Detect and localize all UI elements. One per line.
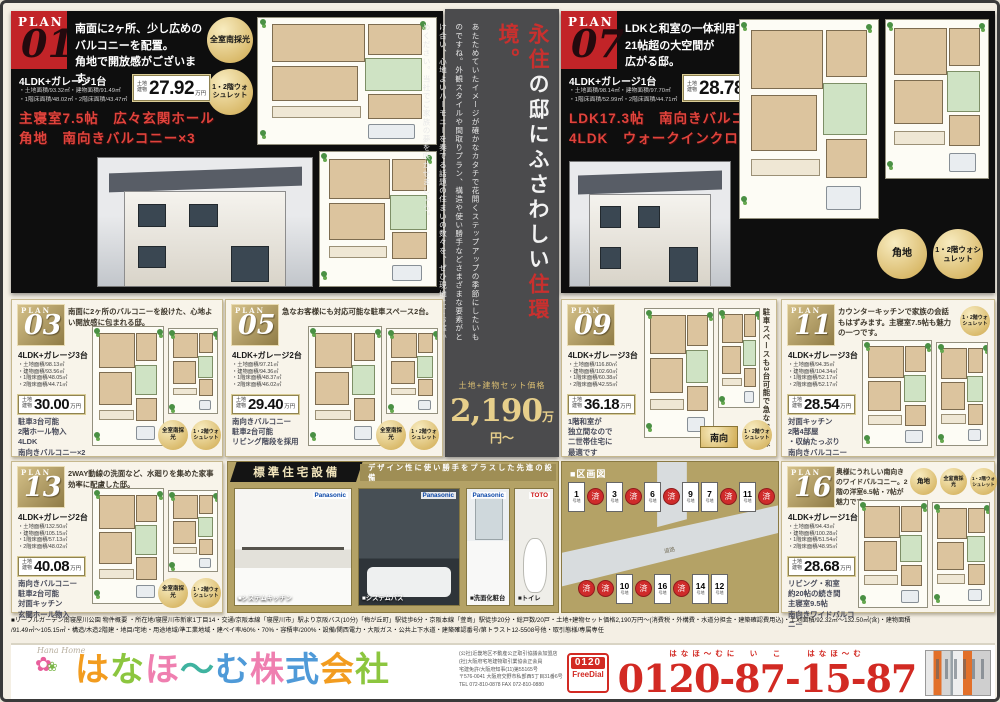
plan-spec: 4LDK+ガレージ2台 <box>232 350 304 361</box>
lot-number: 14号地 <box>692 574 709 604</box>
floorplan-room <box>99 372 133 405</box>
price-prefix-line: 建物 <box>792 404 802 410</box>
floorplan-room <box>949 28 980 66</box>
plan-number: 16 <box>787 477 835 500</box>
price-prefix-line: 建物 <box>572 404 582 410</box>
address-line: TEL 072-810-0878 FAX 072-810-0880 <box>459 682 563 690</box>
plan-word: PLAN <box>17 466 65 477</box>
area-line: ・1階床面積/52.99㎡・2階床面積/44.71㎡ <box>569 96 681 105</box>
price-prefix: 土地建物 <box>792 560 802 572</box>
floorplan-room <box>198 517 213 538</box>
phone-block: はなほ〜むに い こ はなほ〜む 0120-87-15-87 <box>613 645 921 699</box>
company-name-char: 会 <box>320 651 355 689</box>
tree-icon <box>260 19 266 25</box>
plan-spec: 4LDK+ガレージ3台 <box>18 350 90 361</box>
floorplan-room <box>354 398 376 422</box>
plan-number: 11 <box>787 315 835 338</box>
car-icon <box>968 589 983 601</box>
lot-sold-badge: 済 <box>720 488 737 505</box>
tree-icon <box>94 490 100 496</box>
plan-word: PLAN <box>231 304 279 315</box>
plan-spec: 4LDK+ガレージ2台 <box>18 512 90 523</box>
tree-icon <box>860 595 866 601</box>
car-icon <box>354 426 373 440</box>
tree-icon <box>94 432 100 438</box>
floorplan-room <box>864 541 897 571</box>
floorplan-room <box>368 94 421 119</box>
price-value: 28.54 <box>804 397 839 412</box>
floorplan-room <box>198 356 213 378</box>
badge-washlet: 1・2階ウォシュレット <box>191 578 221 608</box>
floorplan-room <box>391 361 415 385</box>
tree-icon <box>157 491 163 497</box>
plan-number: 01 <box>11 29 67 59</box>
plan-number: 09 <box>567 315 615 338</box>
floor-plan-1f <box>257 17 437 145</box>
siteplan-row-bottom: 済済10号地済16号地済14号地12号地 <box>578 574 728 604</box>
siteplan-label: ■区画図 <box>570 467 606 480</box>
feature-line: 駐車2台可能 <box>232 427 304 437</box>
floorplan-room <box>99 569 134 579</box>
feature-line: 1階和室が <box>568 417 640 427</box>
floorplan-room <box>272 66 357 101</box>
plan-features: 南向きバルコニー 駐車2台可能 リビング階段を採用 <box>232 417 304 448</box>
feature-line: 約20帖の続き間 <box>788 589 860 599</box>
plan-features: 対面キッチン 2階4部屋 ・収納たっぷり 南向きバルコニー <box>788 417 860 458</box>
plan-areas: ・土地面積/98.14㎡・建物面積/97.70㎡ ・1階床面積/52.99㎡・2… <box>569 87 681 104</box>
plan13-details: 4LDK+ガレージ2台 ・土地面積/132.50㎡ ・建物面積/105.15㎡ … <box>18 512 90 620</box>
floorplan-room <box>722 378 742 387</box>
lot-number: 11号地 <box>739 482 756 512</box>
tree-icon <box>433 331 439 337</box>
price-unit: 万円 <box>70 564 81 574</box>
price-box: 土地建物 30.00 万円 <box>18 395 85 414</box>
brand-label: Panasonic <box>313 492 349 499</box>
plan-word: PLAN <box>567 304 615 315</box>
floor-plan-1f <box>739 19 879 219</box>
tree-icon <box>938 344 944 350</box>
tree-icon <box>887 161 893 167</box>
floorplan-room <box>894 80 943 124</box>
equipment-title: 標準住宅設備 <box>253 464 340 480</box>
badge-south-light: 全室南採光 <box>207 17 253 63</box>
car-icon <box>418 400 431 410</box>
price-box: 土地建物 40.08 万円 <box>18 557 85 576</box>
property-outline: ■リーブルガーデン南寝屋川公園 物件概要 ・所在地/寝屋川市新家1丁目14・交通… <box>11 616 995 641</box>
floorplan-room <box>173 361 196 385</box>
floorplan-room <box>687 315 707 346</box>
plan-spec: 4LDK+ガレージ1台 <box>569 73 656 88</box>
area-line: ・1階床面積/48.37㎡ <box>232 375 304 382</box>
badge-corner-lot: 角地 <box>910 468 937 495</box>
lot-number: 7号地 <box>701 482 718 512</box>
tree-icon <box>213 493 218 499</box>
floorplan-room <box>868 381 901 411</box>
area-line: ・土地面積/116.80㎡ <box>568 362 640 369</box>
tree-icon <box>866 24 872 30</box>
freedial-number-label: 0120 <box>571 657 605 669</box>
photo-caption: ■トイレ <box>518 593 541 602</box>
plan16-card: PLAN 16 奥様にうれしい南向きのワイドバルコニー。2階の洋室6.5帖・7帖… <box>781 461 995 613</box>
price-box: 土地建物 27.92 万円 <box>133 75 210 101</box>
legal-line: (社)大阪府宅地建物取引業協会正会員 <box>459 659 563 667</box>
plan01-number-box: PLAN 01 <box>11 11 67 69</box>
area-line: ・2階床面積/42.55㎡ <box>568 382 640 389</box>
price-unit: 万円 <box>840 564 851 574</box>
plan05-details: 4LDK+ガレージ2台 ・土地面積/97.21㎡ ・建物面積/94.36㎡ ・1… <box>232 350 304 448</box>
photo-system-kitchen: Panasonic ■システムキッチン <box>234 488 352 606</box>
floor-plan-2f <box>168 328 218 414</box>
tree-icon <box>310 328 316 334</box>
badge-washlet: 1・2階ウォシュレット <box>960 306 990 336</box>
floorplan-room <box>136 495 157 522</box>
tree-icon <box>864 342 870 348</box>
area-line: ・1階床面積/52.17㎡ <box>788 375 860 382</box>
plan-areas: ・土地面積/97.21㎡ ・建物面積/94.36㎡ ・1階床面積/48.37㎡ … <box>232 362 304 388</box>
company-name-char: 社 <box>355 651 390 689</box>
plan11-details: 4LDK+ガレージ3台 ・土地面積/94.35㎡ ・建物面積/104.34㎡ ・… <box>788 350 860 458</box>
plan-features: 南向きバルコニー 駐車2台可能 対面キッチン 玄関ホール物入 <box>18 579 90 620</box>
company-name-char: 式 <box>285 651 320 689</box>
floor-plan-2f <box>168 490 218 572</box>
plan11-number-box: PLAN 11 <box>787 304 835 346</box>
tree-icon <box>321 153 327 159</box>
floorplan-room <box>937 508 966 539</box>
facade <box>124 191 287 287</box>
floorplan-room <box>941 348 967 379</box>
plan-areas: ・土地面積/116.80㎡ ・建物面積/102.60㎡ ・1階床面積/60.38… <box>568 362 640 388</box>
price-prefix: 土地建物 <box>236 398 246 410</box>
feature-line: 2階4部屋 <box>788 427 860 437</box>
floorplan-room <box>199 495 213 514</box>
plan-areas: ・土地面積/94.43㎡ ・建物面積/100.28㎡ ・1階床面積/51.54㎡… <box>788 524 860 550</box>
floorplan-room <box>315 333 352 368</box>
price-value: 40.08 <box>34 559 69 574</box>
floorplan-room <box>650 358 683 394</box>
floorplan-room <box>968 564 985 584</box>
plan-spec: 4LDK+ガレージ3台 <box>788 350 860 361</box>
office-photo <box>925 650 991 696</box>
floorplan-room <box>99 410 134 421</box>
lot-number: 6号地 <box>644 482 661 512</box>
floorplan-room <box>352 365 375 396</box>
floorplan-room <box>901 506 921 531</box>
plan16-number-box: PLAN 16 <box>787 466 835 508</box>
price-prefix-line: 建物 <box>22 566 32 572</box>
tree-icon <box>864 435 870 441</box>
company-name-char: は <box>75 651 110 689</box>
plan-word: PLAN <box>787 304 835 315</box>
plan03-card: PLAN 03 南面に2ヶ所のバルコニーを設けた、心地よい開放感に包まれる邸。 … <box>11 299 223 457</box>
tree-icon <box>921 503 927 509</box>
floorplan-room <box>272 24 365 62</box>
floorplan-room <box>967 376 983 403</box>
floorplan-room <box>937 542 964 571</box>
feature-line: 南向きバルコニー <box>788 448 860 458</box>
roof <box>578 171 722 195</box>
price-prefix-line: 建物 <box>22 404 32 410</box>
plan-spec: 4LDK+ガレージ1台 <box>19 73 106 88</box>
window <box>138 246 167 269</box>
price-prefix: 土地建物 <box>137 82 147 94</box>
lot-number: 3号地 <box>606 482 623 512</box>
price-unit: 万円 <box>284 402 295 412</box>
plan-features: 1階和室が 独立間なので 二世帯住宅に 最適です <box>568 417 640 458</box>
plan-spec: 4LDK+ガレージ3台 <box>568 350 640 361</box>
tree-icon <box>741 22 747 28</box>
set-price-block: 土地+建物セット価格 2,190万円〜 <box>445 380 559 447</box>
badge-washlet: 1・2階ウォシュレット <box>970 468 997 495</box>
feature-line: 二世帯住宅に <box>568 437 640 447</box>
tree-icon <box>169 404 175 410</box>
floorplan-room <box>751 95 817 150</box>
floor-plan-2f <box>885 19 989 179</box>
tree-icon <box>938 434 944 440</box>
tree-icon <box>646 423 652 429</box>
floorplan-room <box>99 495 135 529</box>
floorplan-room <box>136 557 157 580</box>
area-line: ・2階床面積/48.02㎡ <box>18 544 90 551</box>
window <box>138 204 167 227</box>
car-icon <box>949 153 976 172</box>
feature-line: 4LDK <box>18 437 90 447</box>
floorplan-room <box>937 574 965 583</box>
floorplan-room <box>173 388 197 396</box>
floorplan-room <box>905 405 925 426</box>
feature-line: 駐車2台可能 <box>18 589 90 599</box>
floorplan-room <box>751 159 820 177</box>
plan-areas: ・土地面積/98.13㎡ ・建物面積/93.56㎡ ・1階床面積/48.05㎡ … <box>18 362 90 388</box>
feature-line: 南向きバルコニー <box>18 579 90 589</box>
floorplan-room <box>743 340 756 365</box>
price-prefix: 土地建物 <box>687 82 697 94</box>
area-line: ・土地面積/98.14㎡・建物面積/97.70㎡ <box>569 87 681 96</box>
floorplan-room <box>650 315 685 353</box>
tree-icon <box>388 330 394 336</box>
lot-number: 9号地 <box>682 482 699 512</box>
feature-line: リビング階段を採用 <box>232 437 304 447</box>
feature-line: 2階ホール物入 <box>18 427 90 437</box>
plan-number: 05 <box>231 315 279 338</box>
floorplan-room <box>650 399 684 411</box>
floorplan-room <box>173 333 198 358</box>
phone-number: 0120-87-15-87 <box>613 659 921 699</box>
floorplan-room <box>329 203 385 241</box>
floorplan-room <box>744 368 756 388</box>
price-box: 土地建物 29.40 万円 <box>232 395 299 414</box>
price-prefix: 土地建物 <box>792 398 802 410</box>
floorplan-room <box>722 346 741 373</box>
price-value: 28.68 <box>804 559 839 574</box>
tree-icon <box>983 345 989 351</box>
equipment-subtitle: デザイン性に使い勝手をプラスした先進の設備 <box>360 464 556 481</box>
plan07-number-box: PLAN 07 <box>561 11 617 69</box>
floorplan-room <box>173 521 196 543</box>
tree-icon <box>213 331 218 337</box>
price-value: 36.18 <box>584 397 619 412</box>
floorplan-room <box>365 58 422 91</box>
area-line: ・1階床面積/60.38㎡ <box>568 375 640 382</box>
floorplan-room <box>744 314 756 338</box>
window <box>638 206 660 228</box>
floorplan-room <box>941 382 965 411</box>
lot-sold-badge: 済 <box>635 580 652 597</box>
car-icon <box>905 430 923 443</box>
property-outline-line2: /91.49㎡〜105.15㎡・構造/木造2階建・地目/宅地・用途地域/準工業地… <box>11 626 995 636</box>
plan11-card: PLAN 11 カウンターキッチンで家族の会話もはずみます。主寝室7.5帖も魅力… <box>781 299 995 457</box>
price-unit: 万円 <box>840 402 851 412</box>
floorplan-room <box>136 398 157 422</box>
floorplan-room <box>901 565 921 586</box>
vertical-text: 永住の邸にふさわしい住環境。 あたためていたイメージが確かなカタチで花開くステッ… <box>451 23 553 349</box>
floorplan-room <box>941 414 966 423</box>
floorplan-room <box>135 525 157 555</box>
floorplan-room <box>722 314 743 343</box>
price-value: 27.92 <box>149 79 194 98</box>
floorplan-room <box>417 356 433 378</box>
headline-part: の邸にふさわしい <box>526 73 551 273</box>
house-photo <box>97 157 313 287</box>
car-icon <box>136 426 154 440</box>
company-name-char: 株 <box>250 651 285 689</box>
floorplan-room <box>199 539 213 555</box>
feature-line: リビング・和室 <box>788 579 860 589</box>
equipment-section: 標準住宅設備 デザイン性に使い勝手をプラスした先進の設備 Panasonic ■… <box>227 461 559 613</box>
tree-icon <box>979 23 985 29</box>
lot-sold-badge: 済 <box>625 488 642 505</box>
car-icon <box>199 400 211 410</box>
floorplan-room <box>826 139 867 179</box>
tree-icon <box>375 329 381 335</box>
tree-icon <box>94 328 100 334</box>
floorplan-room <box>199 333 213 353</box>
feature-line: 南向きバルコニー×2 <box>18 448 90 458</box>
tree-icon <box>860 502 866 508</box>
car-icon <box>968 429 981 441</box>
badge-washlet: 1・2階ウォシュレット <box>191 420 221 450</box>
floorplan-room <box>391 388 416 396</box>
property-outline-line1: ■リーブルガーデン南寝屋川公園 物件概要 ・所在地/寝屋川市新家1丁目14・交通… <box>11 616 995 626</box>
tree-icon <box>984 505 990 511</box>
floor-plan-2f <box>932 502 990 606</box>
floorplan-room <box>905 346 925 371</box>
plan05-card: PLAN 05 急なお客様にも対応可能な駐車スペース2台。 4LDK+ガレージ2… <box>225 299 443 457</box>
plan09-details: 4LDK+ガレージ3台 ・土地面積/116.80㎡ ・建物面積/102.60㎡ … <box>568 350 640 458</box>
floor-plan-1f <box>92 326 164 446</box>
floorplan-room <box>99 532 133 564</box>
car-icon <box>744 391 754 403</box>
area-line: ・2階床面積/46.02㎡ <box>232 382 304 389</box>
plan-areas: ・土地面積/93.32㎡・建物面積/91.49㎡ ・1階床面積/48.02㎡・2… <box>19 87 131 104</box>
footer: Hana Home ✿❀ はなほ〜む株式会社 (公社)近畿地区不動産公正取引協議… <box>11 643 995 699</box>
area-line: ・1階床面積/51.54㎡ <box>788 537 860 544</box>
plan07-panel: PLAN 07 LDKと和室の一体利用で、 21帖超の大空間が 広がる邸。 4L… <box>561 11 995 293</box>
tree-icon <box>925 343 931 349</box>
badge-washlet: 1・2階ウォシュレット <box>933 229 983 279</box>
real-estate-flyer: PLAN 01 南面に2ヶ所、少し広めの バルコニーを配置。 角地で開放感がござ… <box>0 0 1000 702</box>
area-line: ・土地面積/97.21㎡ <box>232 362 304 369</box>
brand-label: Panasonic <box>421 492 457 499</box>
tree-icon <box>260 130 266 136</box>
tree-icon <box>388 404 394 410</box>
floorplan-room <box>329 159 389 199</box>
floorplan-room <box>823 83 867 134</box>
window <box>600 247 622 269</box>
floorplan-room <box>751 30 823 89</box>
floorplan-room <box>272 106 361 117</box>
tree-icon <box>646 310 652 316</box>
address-line: 〒576-0041 大阪府交野市私部西5丁目31番6号 <box>459 674 563 682</box>
brand-label: Panasonic <box>471 492 507 499</box>
car-icon <box>368 124 414 139</box>
badge-corner-lot: 角地 <box>877 229 927 279</box>
badge-south-light: 全室南採光 <box>376 420 406 450</box>
floor-plan-2f <box>936 342 988 446</box>
price-prefix-line: 建物 <box>236 404 246 410</box>
price-value: 28.78 <box>699 79 744 98</box>
plan05-catch: 急なお客様にも対応可能な駐車スペース2台。 <box>282 307 438 318</box>
site-plan: ■区画図 道路 1号地済3号地済6号地済9号地7号地済11号地済 済済10号地済… <box>561 461 779 613</box>
lot-number: 1号地 <box>568 482 585 512</box>
window <box>189 204 218 227</box>
price-value: 30.00 <box>34 397 69 412</box>
lot-number: 10号地 <box>616 574 633 604</box>
badge-south-light: 全室南採光 <box>158 420 188 450</box>
floorplan-room <box>136 333 157 361</box>
floorplan-room <box>329 246 387 258</box>
company-name-char: む <box>215 651 250 689</box>
plan-areas: ・土地面積/132.50㎡ ・建物面積/105.15㎡ ・1階床面積/57.13… <box>18 524 90 550</box>
tree-icon <box>310 432 316 438</box>
floorplan-room <box>354 333 376 361</box>
lot-sold-badge: 済 <box>663 488 680 505</box>
tree-icon <box>741 196 747 202</box>
floorplan-room <box>894 28 947 75</box>
area-line: ・2階床面積/48.95㎡ <box>788 544 860 551</box>
floorplan-room <box>315 410 351 421</box>
floorplan-room <box>173 495 198 519</box>
lot-number: 16号地 <box>654 574 671 604</box>
window <box>600 206 622 228</box>
floorplan-room <box>135 365 157 396</box>
feature-line: 最適です <box>568 448 640 458</box>
floorplan-room <box>826 30 867 78</box>
floorplan-room <box>368 24 421 54</box>
floorplan-room <box>947 71 980 112</box>
feature-line: 南向きバルコニー <box>232 417 304 427</box>
flower-logo-icon: ✿❀ <box>35 655 58 675</box>
floorplan-room <box>868 346 903 378</box>
price-box: 土地建物 28.54 万円 <box>788 395 855 414</box>
floorplan-room <box>418 379 433 396</box>
floor-plan-1f <box>858 500 928 608</box>
roof <box>109 166 302 192</box>
plan05-number-box: PLAN 05 <box>231 304 279 346</box>
price-box: 土地建物 28.68 万円 <box>788 557 855 576</box>
siteplan-row-top: 1号地済3号地済6号地済9号地7号地済11号地済 <box>568 482 775 512</box>
company-name-char: 〜 <box>180 651 215 689</box>
price-unit: 万円 <box>70 402 81 412</box>
badge-south-light: 全室南採光 <box>940 468 967 495</box>
feature-line: 主寝室9.5帖 <box>788 599 860 609</box>
floorplan-room <box>904 375 926 403</box>
plan11-catch: カウンターキッチンで家族の会話もはずみます。主寝室7.5帖も魅力の一つです。 <box>838 307 956 339</box>
floorplan-room <box>418 333 433 353</box>
main-headline: 永住の邸にふさわしい住環境。 <box>493 23 553 349</box>
photo-system-bath: Panasonic ■システムバス <box>358 488 460 606</box>
catch-line: 南面に2ヶ所、少し広めの <box>75 21 205 38</box>
floorplan-room <box>391 333 417 358</box>
